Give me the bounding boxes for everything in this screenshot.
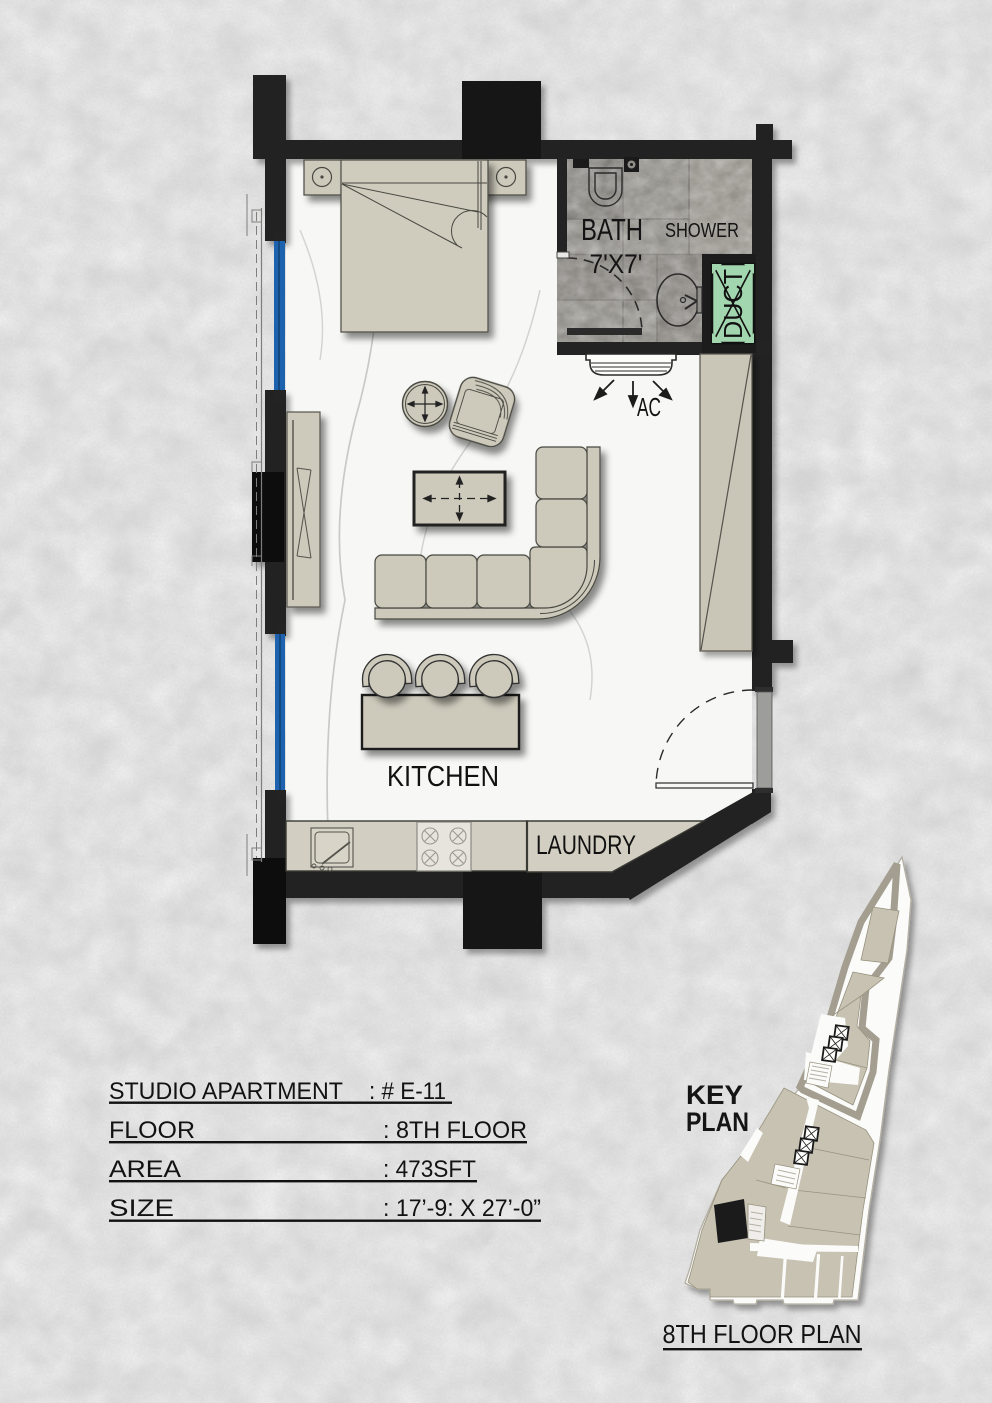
svg-text:: 17’-9: X 27’-0”: : 17’-9: X 27’-0”: [383, 1195, 541, 1222]
svg-text:FLOOR: FLOOR: [109, 1117, 195, 1144]
svg-text:DUCT: DUCT: [718, 269, 748, 339]
svg-text:STUDIO APARTMENT: STUDIO APARTMENT: [109, 1078, 343, 1105]
svg-text:: 8TH FLOOR: : 8TH FLOOR: [383, 1117, 527, 1144]
svg-text:SIZE: SIZE: [109, 1195, 174, 1222]
svg-text:KEY: KEY: [686, 1080, 743, 1110]
svg-text:BATH: BATH: [581, 212, 643, 247]
svg-text:8TH FLOOR PLAN: 8TH FLOOR PLAN: [663, 1319, 862, 1349]
svg-text:PLAN: PLAN: [686, 1107, 749, 1137]
svg-text:LAUNDRY: LAUNDRY: [536, 830, 636, 860]
svg-text:AC: AC: [637, 392, 661, 422]
svg-text:: 473SFT: : 473SFT: [383, 1156, 476, 1183]
svg-text:AREA: AREA: [109, 1156, 181, 1183]
svg-text:: # E-11: : # E-11: [369, 1078, 446, 1105]
svg-text:KITCHEN: KITCHEN: [387, 761, 499, 793]
svg-text:SHOWER: SHOWER: [665, 220, 739, 242]
svg-text:7'X7': 7'X7': [590, 249, 643, 279]
